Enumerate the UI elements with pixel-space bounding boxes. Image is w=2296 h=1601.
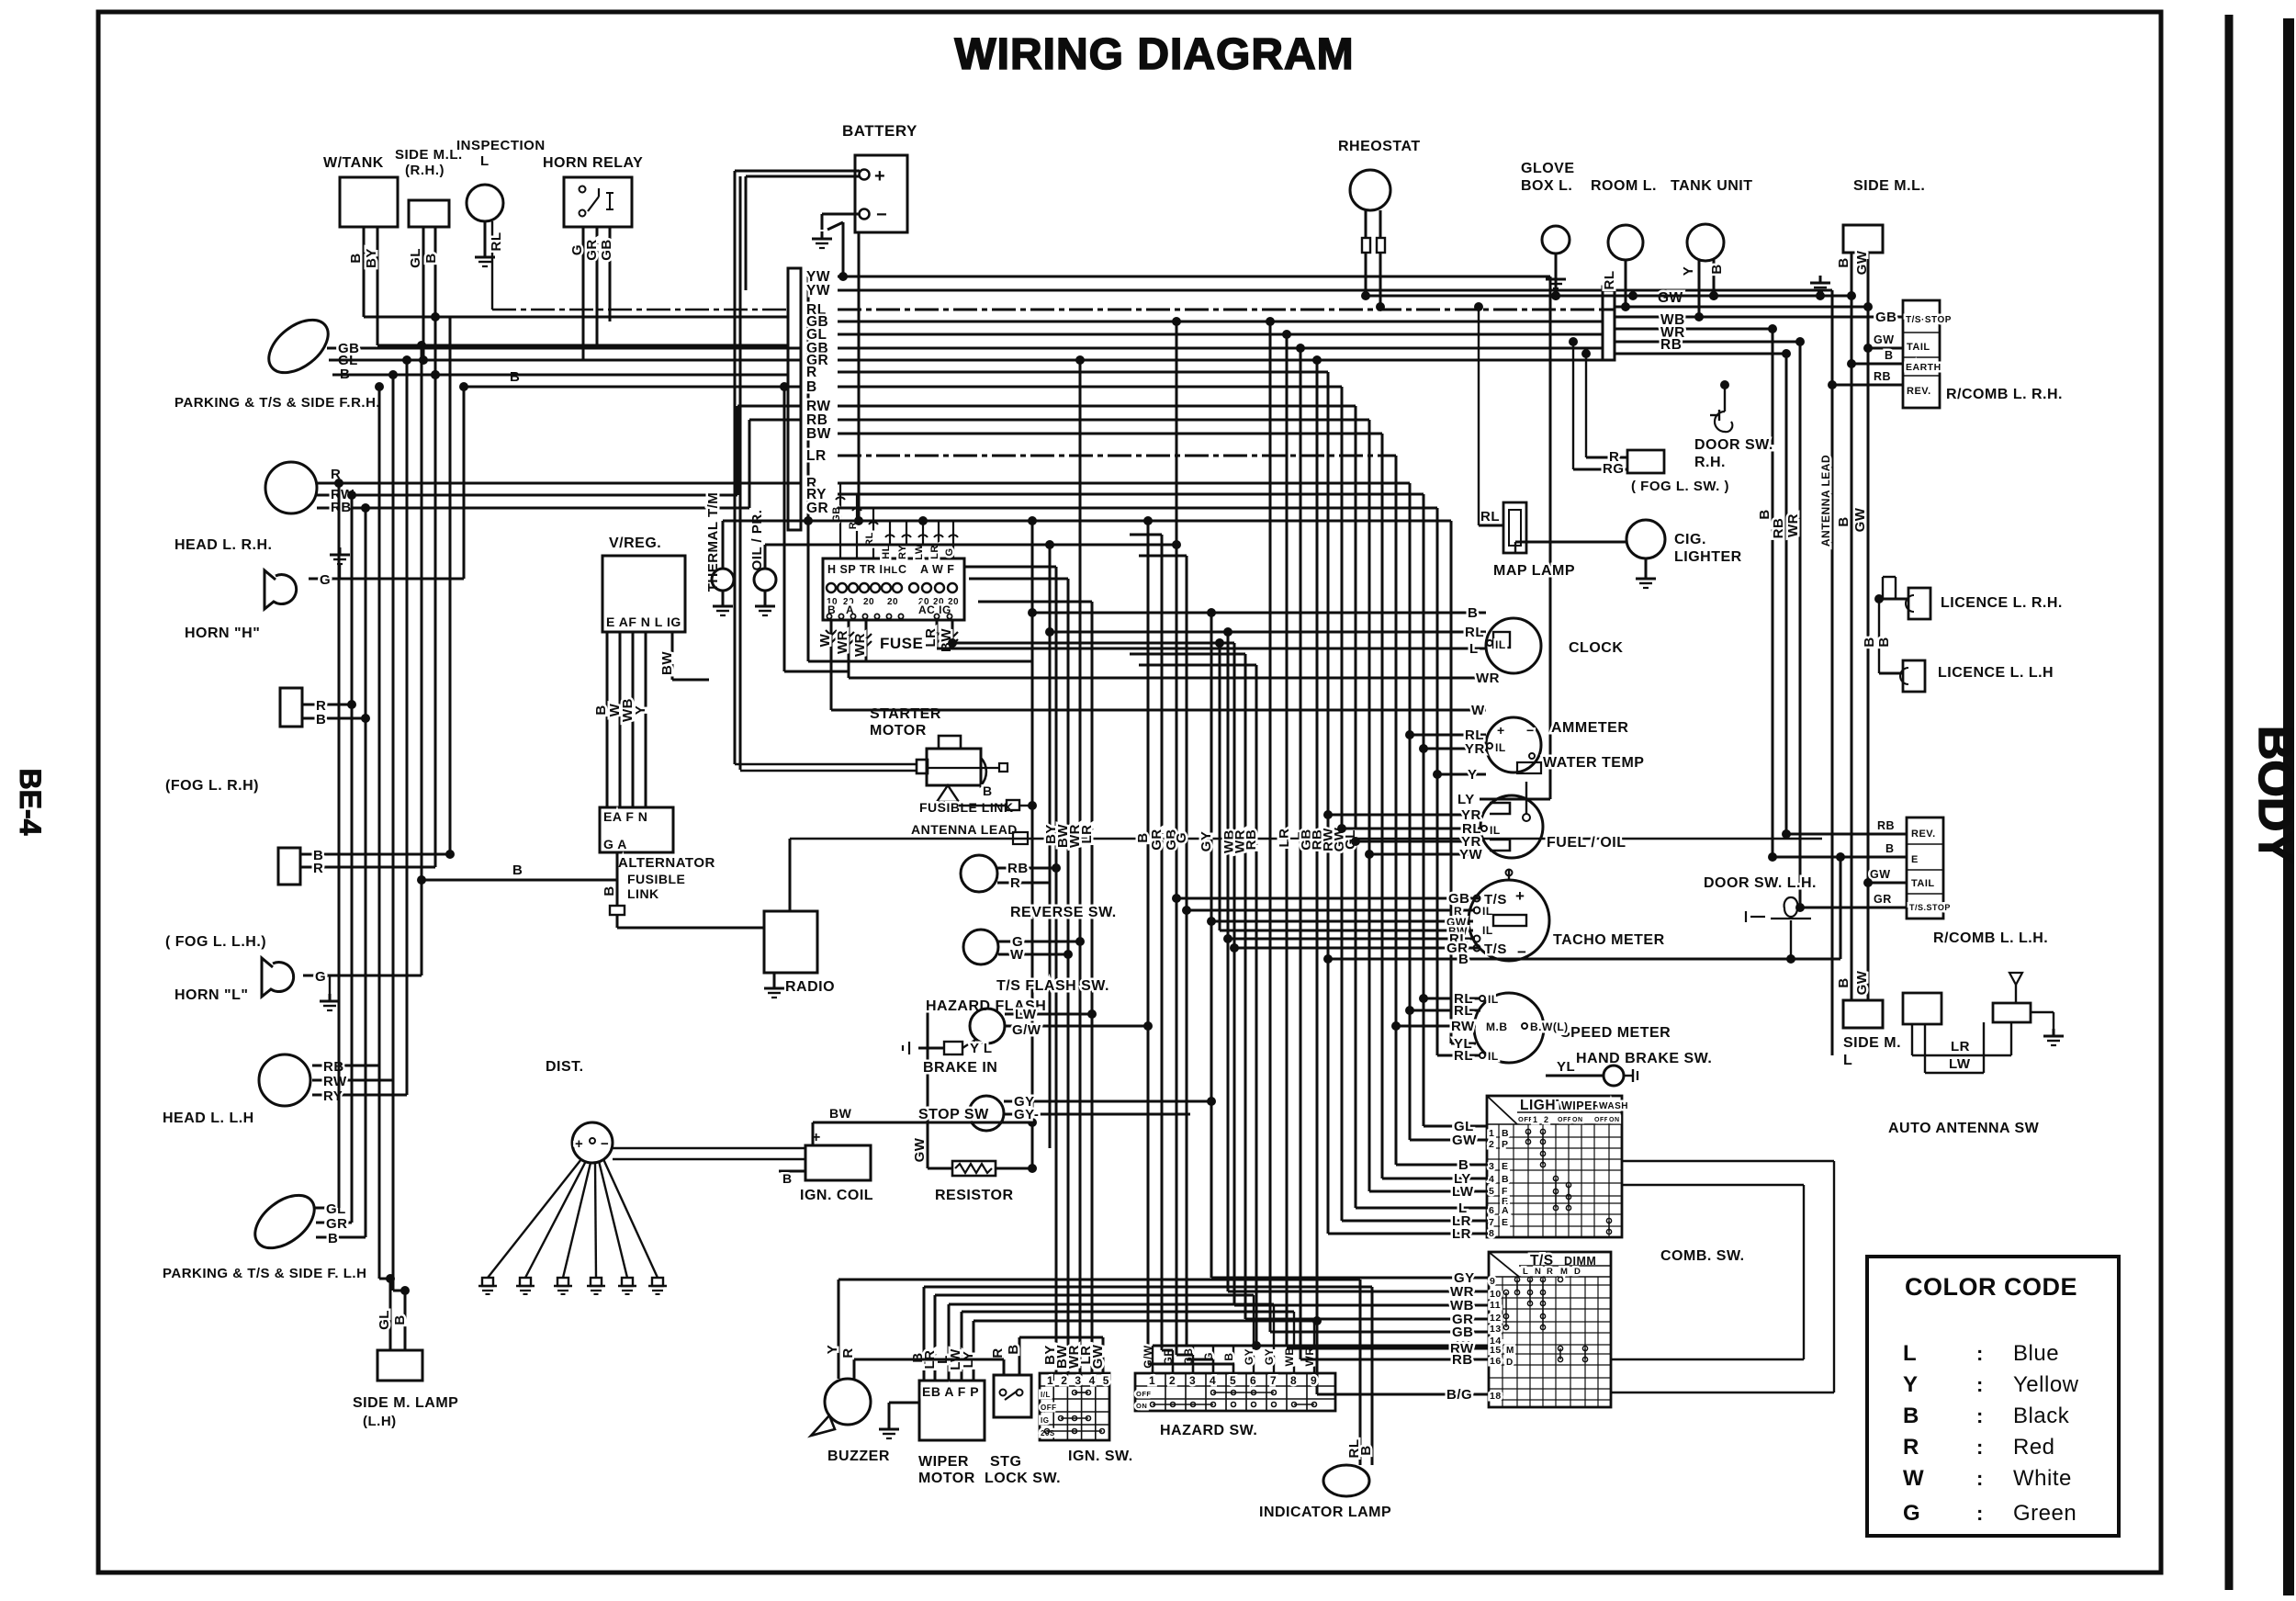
svg-text:HORN "L": HORN "L" <box>174 987 249 1003</box>
svg-text:SIDE M. LAMP: SIDE M. LAMP <box>353 1395 458 1411</box>
svg-text:G: G <box>569 244 585 255</box>
svg-text:LR: LR <box>1452 1226 1471 1242</box>
svg-text:B: B <box>328 1231 338 1246</box>
svg-text:IL: IL <box>1488 993 1499 1006</box>
svg-text:R.H.: R.H. <box>1694 455 1726 470</box>
svg-text:OFF: OFF <box>1136 1390 1152 1398</box>
svg-text:RB: RB <box>323 1059 344 1075</box>
svg-text:HORN "H": HORN "H" <box>185 626 260 641</box>
svg-text:GR: GR <box>584 239 600 261</box>
svg-text:4: 4 <box>1210 1374 1216 1387</box>
svg-text:ANTENNA LEAD: ANTENNA LEAD <box>911 822 1018 837</box>
svg-text:WR: WR <box>852 633 868 657</box>
svg-text:IGN. SW.: IGN. SW. <box>1068 1449 1133 1464</box>
svg-text:GR: GR <box>1149 829 1165 851</box>
svg-text:BY: BY <box>364 248 379 268</box>
svg-text:R: R <box>1903 1435 1919 1460</box>
svg-text:OFF: OFF <box>1594 1117 1609 1123</box>
svg-text:W: W <box>1010 947 1024 963</box>
svg-text:BODY: BODY <box>2248 726 2296 863</box>
svg-text:B: B <box>1836 257 1851 267</box>
svg-text:R: R <box>806 365 817 380</box>
svg-text:1: 1 <box>1533 1115 1538 1124</box>
svg-text:HORN RELAY: HORN RELAY <box>543 155 643 171</box>
svg-text:B: B <box>602 885 617 896</box>
svg-text:OFF: OFF <box>1558 1117 1572 1123</box>
svg-text:2: 2 <box>1169 1374 1176 1387</box>
svg-text:B: B <box>782 1171 793 1186</box>
svg-text:R: R <box>840 1347 856 1358</box>
svg-text:GR: GR <box>326 1216 348 1232</box>
svg-text:(L.H): (L.H) <box>363 1414 397 1429</box>
svg-text:BW: BW <box>829 1106 852 1121</box>
svg-text:PARKING & T/S & SIDE F. L.H: PARKING & T/S & SIDE F. L.H <box>163 1266 366 1281</box>
svg-text:B: B <box>1876 637 1892 647</box>
svg-text:GR: GR <box>806 501 828 516</box>
svg-text:B: B <box>316 712 326 727</box>
svg-text:B: B <box>806 379 817 395</box>
svg-text:B: B <box>1222 1352 1235 1360</box>
svg-text:WIRING DIAGRAM: WIRING DIAGRAM <box>954 30 1354 79</box>
svg-text:RB: RB <box>1452 1352 1473 1368</box>
svg-text:RB: RB <box>1771 518 1786 539</box>
svg-text:13: 13 <box>1490 1324 1502 1335</box>
svg-text:MOTOR: MOTOR <box>918 1471 975 1486</box>
svg-text:BW: BW <box>806 426 831 442</box>
svg-text:M.B: M.B <box>1486 1020 1508 1033</box>
svg-text:Y: Y <box>1681 266 1696 276</box>
svg-text:RG: RG <box>1603 461 1625 477</box>
svg-text:OFF: OFF <box>1518 1115 1534 1123</box>
svg-text:GY-: GY- <box>1014 1107 1039 1122</box>
svg-text:M: M <box>1560 1267 1568 1277</box>
svg-text:INDICATOR LAMP: INDICATOR LAMP <box>1259 1505 1391 1520</box>
svg-text:REV.: REV. <box>1911 829 1936 840</box>
svg-text:GLOVE: GLOVE <box>1521 161 1575 176</box>
svg-text:1: 1 <box>1047 1374 1053 1387</box>
svg-text:20: 20 <box>863 597 874 607</box>
svg-text:LR: LR <box>1079 825 1095 844</box>
svg-text:TANK UNIT: TANK UNIT <box>1671 178 1753 194</box>
svg-text:EB A F P: EB A F P <box>922 1384 979 1399</box>
svg-text:LIGHTER: LIGHTER <box>1674 549 1742 565</box>
svg-text:2: 2 <box>1544 1115 1549 1124</box>
svg-text:RY: RY <box>897 545 908 559</box>
svg-text:18: 18 <box>1490 1391 1502 1402</box>
svg-text:HL: HL <box>884 565 898 576</box>
svg-text:( FOG L. L.H.): ( FOG L. L.H.) <box>165 934 266 950</box>
svg-text:+: + <box>1497 723 1505 738</box>
svg-text:IGN. COIL: IGN. COIL <box>800 1188 873 1203</box>
svg-text:B: B <box>392 1314 408 1325</box>
svg-text:LW: LW <box>1949 1056 1971 1072</box>
svg-text:P: P <box>1502 1139 1509 1150</box>
svg-text:YW: YW <box>806 283 830 299</box>
svg-text:R/COMB L. R.H.: R/COMB L. R.H. <box>1946 387 2063 402</box>
svg-text:R/COMB L. L.H.: R/COMB L. L.H. <box>1933 930 2048 946</box>
svg-text:8: 8 <box>1489 1228 1494 1239</box>
svg-text:W: W <box>1903 1466 1924 1491</box>
svg-text:RB: RB <box>1874 370 1891 383</box>
svg-text:HAZARD SW.: HAZARD SW. <box>1160 1423 1257 1438</box>
svg-text:HEAD L. R.H.: HEAD L. R.H. <box>174 537 272 553</box>
svg-text:IL: IL <box>1488 1050 1499 1063</box>
svg-text:LW: LW <box>1015 1007 1037 1022</box>
svg-text:GY: GY <box>1199 831 1214 852</box>
svg-text:10: 10 <box>1490 1289 1502 1300</box>
svg-text:E: E <box>1502 1217 1509 1228</box>
svg-text:DOOR SW. L.H.: DOOR SW. L.H. <box>1704 875 1817 891</box>
svg-text:+: + <box>1515 887 1525 905</box>
svg-text:LICENCE L. R.H.: LICENCE L. R.H. <box>1941 595 2063 611</box>
svg-text:RB: RB <box>1007 861 1029 876</box>
svg-text:LOCK SW.: LOCK SW. <box>985 1471 1061 1486</box>
svg-text::: : <box>1976 1373 1984 1396</box>
svg-text:LR: LR <box>929 545 940 559</box>
svg-text:OFF: OFF <box>1041 1404 1057 1412</box>
svg-text:LR: LR <box>923 628 939 648</box>
svg-text:Green: Green <box>2013 1501 2077 1526</box>
svg-text:HL: HL <box>881 545 892 559</box>
svg-text:B: B <box>1006 1344 1021 1354</box>
svg-text:AUTO ANTENNA SW: AUTO ANTENNA SW <box>1888 1121 2040 1136</box>
svg-text:T/S.STOP: T/S.STOP <box>1909 903 1951 912</box>
svg-text:BRAKE IN: BRAKE IN <box>923 1060 997 1076</box>
svg-text:T/S·STOP: T/S·STOP <box>1906 315 1952 325</box>
svg-text:White: White <box>2013 1466 2072 1491</box>
svg-text:WIPER: WIPER <box>1561 1099 1601 1112</box>
svg-text:15: 15 <box>1490 1345 1502 1356</box>
svg-text:B.W(L): B.W(L) <box>1530 1020 1569 1033</box>
svg-text:RW: RW <box>1451 1019 1475 1034</box>
svg-text:RL: RL <box>489 232 504 252</box>
svg-text:B/G: B/G <box>1446 1387 1472 1403</box>
svg-text:WR: WR <box>835 630 850 654</box>
svg-text:B: B <box>423 253 439 263</box>
svg-text:E: E <box>1502 1161 1509 1172</box>
svg-text:PARKING & T/S & SIDE F.R.H.: PARKING & T/S & SIDE F.R.H. <box>174 395 380 411</box>
svg-text:9: 9 <box>1490 1276 1495 1287</box>
svg-text:−: − <box>601 1136 609 1152</box>
svg-text:R: R <box>1010 875 1020 891</box>
svg-text:RB: RB <box>1877 819 1895 832</box>
svg-text:RL: RL <box>1602 271 1617 290</box>
svg-text:GW: GW <box>912 1137 928 1162</box>
svg-text:GR: GR <box>1874 893 1892 906</box>
svg-text:IL: IL <box>1495 741 1506 754</box>
svg-text::: : <box>1976 1342 1984 1365</box>
svg-text:DIST.: DIST. <box>546 1059 584 1075</box>
svg-text:IL: IL <box>1490 824 1501 837</box>
svg-text:Yellow: Yellow <box>2013 1372 2079 1397</box>
svg-text:REVERSE SW.: REVERSE SW. <box>1010 905 1117 920</box>
svg-text:12: 12 <box>1490 1313 1502 1324</box>
svg-text:LR: LR <box>806 448 827 464</box>
svg-text:E: E <box>1911 854 1919 865</box>
svg-text:( FOG L. SW. ): ( FOG L. SW. ) <box>1631 479 1729 494</box>
svg-text:Red: Red <box>2013 1435 2055 1460</box>
svg-text:C: C <box>898 563 907 576</box>
svg-text:R: R <box>1547 1267 1553 1277</box>
svg-text:L: L <box>1469 641 1479 657</box>
svg-text:2: 2 <box>1061 1374 1067 1387</box>
svg-text:B: B <box>983 784 993 798</box>
svg-text:GL: GL <box>326 1201 346 1217</box>
svg-text:DOOR SW.: DOOR SW. <box>1694 437 1773 453</box>
svg-text:GW: GW <box>1452 1133 1477 1148</box>
svg-text:G/W: G/W <box>1012 1022 1041 1038</box>
svg-text:IL: IL <box>1482 924 1493 937</box>
svg-text:B: B <box>1709 264 1725 274</box>
svg-text:L: L <box>480 153 490 169</box>
svg-text:V/REG.: V/REG. <box>609 536 661 551</box>
svg-text:IL: IL <box>1482 905 1493 918</box>
svg-text:SIDE M.: SIDE M. <box>1843 1035 1901 1051</box>
svg-text:R: R <box>313 861 323 876</box>
svg-text:Y L: Y L <box>970 1041 993 1056</box>
svg-text:FUSIBLE LINK: FUSIBLE LINK <box>919 800 1013 815</box>
svg-text:WR: WR <box>1476 671 1500 686</box>
svg-text:G: G <box>1903 1501 1920 1526</box>
svg-text:5: 5 <box>1103 1374 1109 1387</box>
svg-text:CLOCK: CLOCK <box>1569 640 1623 656</box>
svg-text:Blue: Blue <box>2013 1341 2059 1366</box>
svg-text:FUEL / OIL: FUEL / OIL <box>1547 835 1626 851</box>
svg-text:4: 4 <box>1089 1374 1096 1387</box>
svg-text:Y: Y <box>633 705 648 716</box>
svg-text:LW: LW <box>914 544 925 560</box>
svg-text::: : <box>1976 1404 1984 1427</box>
svg-text:B: B <box>1502 1128 1509 1139</box>
svg-text:EARTH: EARTH <box>1906 362 1941 373</box>
svg-text:6: 6 <box>1250 1374 1256 1387</box>
svg-text:STG: STG <box>990 1454 1021 1470</box>
svg-text:L: L <box>1903 1341 1917 1366</box>
svg-text:W: W <box>1471 703 1485 718</box>
svg-text:1: 1 <box>1489 1128 1494 1139</box>
svg-text:RB: RB <box>331 500 352 515</box>
svg-text:I/L: I/L <box>1041 1391 1051 1399</box>
svg-text:H SP TR L: H SP TR L <box>827 563 887 576</box>
svg-text:8: 8 <box>1290 1374 1297 1387</box>
svg-text:LINK: LINK <box>627 886 659 901</box>
svg-text:G: G <box>320 572 331 588</box>
svg-text:GW: GW <box>1854 970 1870 995</box>
svg-text:RW: RW <box>323 1074 347 1089</box>
svg-text:+: + <box>575 1136 583 1152</box>
svg-text:B: B <box>1836 516 1851 526</box>
svg-text:BATTERY: BATTERY <box>842 122 917 140</box>
svg-text:ON: ON <box>1609 1117 1620 1123</box>
svg-text:RL: RL <box>1454 1003 1473 1019</box>
svg-text:Y: Y <box>1903 1372 1919 1397</box>
svg-text:3: 3 <box>1489 1161 1494 1172</box>
svg-text:GW: GW <box>1852 507 1868 532</box>
svg-text:MAP LAMP: MAP LAMP <box>1493 563 1575 579</box>
svg-text:E AF N L IG: E AF N L IG <box>606 614 681 629</box>
svg-text:B: B <box>1502 1174 1509 1185</box>
svg-text:FUSIBLE: FUSIBLE <box>627 872 685 886</box>
svg-text::: : <box>1976 1502 1984 1525</box>
svg-text:5: 5 <box>1230 1374 1236 1387</box>
svg-text:G A: G A <box>603 837 627 851</box>
svg-text::: : <box>1976 1467 1984 1490</box>
svg-text:RESISTOR: RESISTOR <box>935 1188 1014 1203</box>
svg-text:HEAD L. L.H: HEAD L. L.H <box>163 1111 254 1126</box>
svg-text:MOTOR: MOTOR <box>870 723 927 738</box>
svg-text:CIG.: CIG. <box>1674 532 1706 547</box>
svg-text:RL: RL <box>1480 509 1500 524</box>
svg-text:GB: GB <box>1875 310 1897 325</box>
svg-text:RB: RB <box>1660 337 1682 353</box>
svg-text:GW: GW <box>1090 1344 1106 1369</box>
svg-text:6: 6 <box>1489 1205 1494 1216</box>
svg-text:BOX L.: BOX L. <box>1521 178 1572 194</box>
svg-text:7: 7 <box>1489 1217 1494 1228</box>
svg-text:B: B <box>1885 349 1894 362</box>
svg-text:COLOR CODE: COLOR CODE <box>1905 1273 2077 1301</box>
svg-text:OIL / PR.: OIL / PR. <box>749 510 765 571</box>
svg-text:3: 3 <box>1189 1374 1196 1387</box>
svg-text:B: B <box>1468 605 1478 621</box>
svg-text:ANTENNA LEAD: ANTENNA LEAD <box>1819 455 1832 547</box>
svg-text:(R.H.): (R.H.) <box>405 163 445 178</box>
svg-text:11: 11 <box>1490 1300 1501 1311</box>
svg-text:7: 7 <box>1270 1374 1277 1387</box>
svg-text:LR: LR <box>1951 1039 1970 1054</box>
svg-text:20: 20 <box>887 597 898 607</box>
svg-text:2: 2 <box>1489 1139 1494 1150</box>
svg-text:GW: GW <box>1870 868 1891 881</box>
svg-text:REV.: REV. <box>1907 386 1931 397</box>
svg-text:HAND BRAKE SW.: HAND BRAKE SW. <box>1576 1051 1712 1066</box>
svg-text:D: D <box>1506 1358 1514 1368</box>
svg-text:16: 16 <box>1490 1356 1502 1367</box>
svg-text:GW: GW <box>1874 333 1895 346</box>
svg-text:A: A <box>1502 1205 1509 1216</box>
svg-text:−: − <box>1526 723 1535 738</box>
svg-text:W/TANK: W/TANK <box>323 155 384 171</box>
svg-text:ON: ON <box>1136 1402 1147 1410</box>
svg-text:B: B <box>1458 952 1469 967</box>
svg-text:R: R <box>990 1347 1006 1358</box>
svg-text:BUZZER: BUZZER <box>827 1449 890 1464</box>
svg-text:BE-4: BE-4 <box>14 769 47 836</box>
svg-text::: : <box>1976 1436 1984 1459</box>
svg-text:IL: IL <box>1495 638 1506 651</box>
svg-text:RB: RB <box>1244 829 1259 851</box>
svg-text:9: 9 <box>1311 1374 1317 1387</box>
svg-text:B: B <box>1885 842 1895 855</box>
svg-text:RADIO: RADIO <box>785 979 835 995</box>
svg-text:B: B <box>1358 1445 1374 1455</box>
svg-text:YL: YL <box>1557 1059 1575 1075</box>
svg-text:LW: LW <box>1452 1184 1474 1200</box>
svg-text:G: G <box>1174 832 1189 843</box>
svg-text:RL: RL <box>1454 1048 1473 1064</box>
svg-text:1: 1 <box>1149 1374 1155 1387</box>
svg-text:COMB. SW.: COMB. SW. <box>1660 1248 1745 1264</box>
svg-text:Y: Y <box>825 1345 840 1355</box>
svg-text:RHEOSTAT: RHEOSTAT <box>1338 139 1421 154</box>
svg-text:SIDE M.L.: SIDE M.L. <box>395 147 463 163</box>
svg-text:G: G <box>315 969 326 985</box>
svg-text:M: M <box>1506 1346 1514 1356</box>
svg-text:IG: IG <box>1041 1416 1049 1425</box>
svg-text:WR: WR <box>1785 513 1801 537</box>
svg-text:FUSE: FUSE <box>880 635 923 652</box>
svg-text:ON: ON <box>1572 1117 1583 1123</box>
svg-text:GY: GY <box>1243 1348 1255 1365</box>
svg-text:STOP SW: STOP SW <box>918 1107 989 1122</box>
svg-text:L: L <box>1523 1267 1528 1277</box>
svg-text:SPEED METER: SPEED METER <box>1560 1025 1671 1041</box>
svg-text:TACHO METER: TACHO METER <box>1553 932 1665 948</box>
svg-text:WIPER: WIPER <box>918 1454 969 1470</box>
svg-text:WASH: WASH <box>1599 1101 1628 1111</box>
svg-text:B: B <box>1836 977 1851 987</box>
svg-text:Black: Black <box>2013 1404 2070 1428</box>
svg-text:ALTERNATOR: ALTERNATOR <box>618 855 715 871</box>
svg-text:WB: WB <box>1283 1347 1296 1367</box>
svg-text:YR: YR <box>1465 741 1485 757</box>
svg-text:TAIL: TAIL <box>1907 342 1930 353</box>
svg-text:B: B <box>512 863 523 878</box>
svg-text:D: D <box>1574 1267 1581 1277</box>
svg-text:GW: GW <box>1658 290 1683 306</box>
svg-text:N: N <box>1535 1267 1541 1277</box>
svg-text:+: + <box>874 166 885 186</box>
svg-text:TAIL: TAIL <box>1911 878 1935 889</box>
svg-text:L: L <box>1843 1053 1852 1068</box>
svg-text:G: G <box>944 547 955 556</box>
svg-text:5: 5 <box>1489 1186 1494 1197</box>
svg-text:YW: YW <box>1459 847 1483 863</box>
svg-text:B: B <box>348 253 364 263</box>
svg-text:WATER TEMP: WATER TEMP <box>1543 755 1644 771</box>
svg-text:GL: GL <box>408 248 423 268</box>
svg-text:A W F: A W F <box>920 563 954 576</box>
svg-text:3: 3 <box>1075 1374 1081 1387</box>
svg-text:BW: BW <box>659 651 675 675</box>
svg-text:B: B <box>1903 1404 1919 1428</box>
svg-text:INSPECTION: INSPECTION <box>456 138 546 153</box>
svg-text:T/S: T/S <box>1484 941 1507 957</box>
svg-text:Y: Y <box>1468 767 1478 783</box>
svg-text:GL: GL <box>377 1310 392 1330</box>
svg-text:B: B <box>1862 637 1877 647</box>
svg-text:W: W <box>817 633 833 647</box>
svg-text:LY: LY <box>1458 792 1475 807</box>
svg-text:AMMETER: AMMETER <box>1551 720 1628 736</box>
svg-text:(FOG L. R.H): (FOG L. R.H) <box>165 778 259 794</box>
svg-text:GY: GY <box>1263 1348 1276 1365</box>
svg-text:B: B <box>510 369 520 385</box>
svg-text:GB: GB <box>599 239 614 261</box>
svg-text:WR: WR <box>1303 1347 1316 1367</box>
svg-text:ROOM L.: ROOM L. <box>1591 178 1657 194</box>
svg-text:LICENCE L. L.H: LICENCE L. L.H <box>1938 665 2054 681</box>
svg-text:RL: RL <box>1465 625 1484 640</box>
svg-text:EA F N: EA F N <box>603 809 647 824</box>
svg-text:−: − <box>876 205 887 225</box>
svg-text:4: 4 <box>1489 1174 1494 1185</box>
svg-text:SIDE M.L.: SIDE M.L. <box>1853 178 1925 194</box>
svg-text:LIGHT: LIGHT <box>1520 1098 1565 1113</box>
svg-text:T/S FLASH SW.: T/S FLASH SW. <box>996 978 1109 994</box>
